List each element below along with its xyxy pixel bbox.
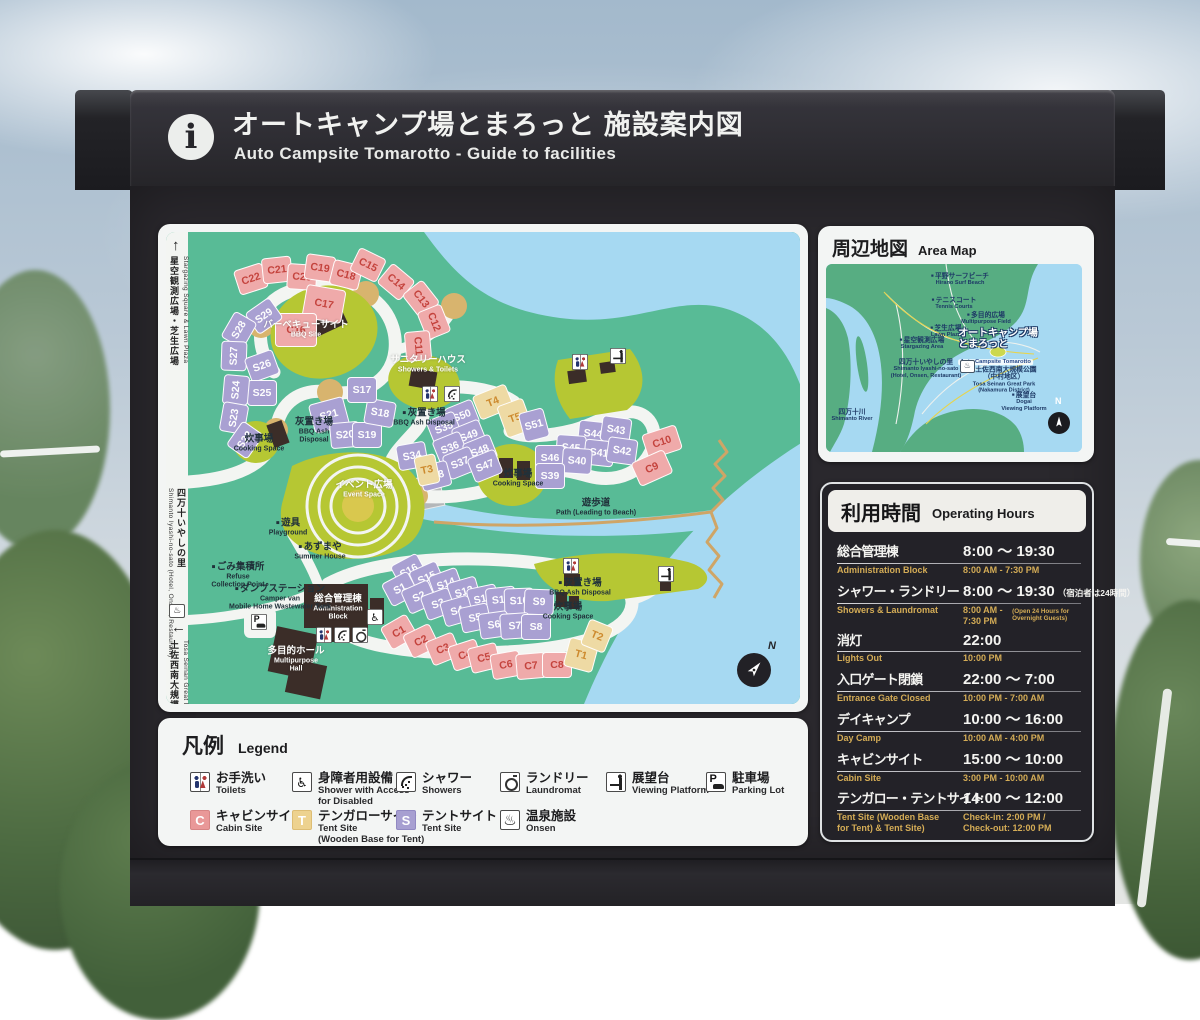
legend-label-jp: テントサイト [422,810,497,824]
legend-label-jp: お手洗い [216,772,266,786]
hours-time: 8:00 ～ 19:30 [963,580,1055,601]
hours-row-jp-line: 総合管理棟8:00 ～ 19:30 [837,540,1081,561]
area-label: 多目的広場Multipurpose Field [961,312,1011,326]
legend-label-en: Laundromat [526,786,589,797]
legend-item-text: 温泉施設Onsen [526,810,576,835]
hours-row-en-line: Showers & Laundromat8:00 AM - 7:30 PM(Op… [837,605,1081,627]
hours-label-jp: シャワー・ランドリー [837,581,963,600]
area-label-layer: 平野サーフビーチHirano Surf BeachテニスコートTennis Co… [826,264,1082,452]
hours-time-en: 8:00 AM - 7:30 PM [963,565,1039,576]
hours-row: 消灯22:00Lights Out10:00 PM [837,630,1081,664]
route-label-en: Tosa Seinan Great Park [182,640,189,704]
hours-row-jp-line: キャビンサイト15:00 ～ 10:00 [837,748,1081,769]
facility-map-panel: C22C21C20C19C18C15C14C13C12C11C17C16S29S… [158,224,808,712]
hours-divider [837,691,1081,692]
onsen-icon: ♨ [169,604,185,618]
area-map-panel: 周辺地図Area Map [818,226,1094,462]
route-label-en: Stargazing Square & Lawn Plaza [182,256,189,363]
legend-label-en: Cabin Site [216,824,304,835]
area-label-jp: 平野サーフビーチ [931,273,989,280]
legend-item-onsen: 温泉施設Onsen [500,810,576,835]
area-label-jp: 土佐西南大規模公園（中村地区） [965,366,1043,381]
map-label-en: Event Space [335,491,392,499]
hours-time: 10:00 ～ 16:00 [963,708,1063,729]
area-onsen-icon: ♨ [960,360,975,373]
legend-label-jp: 温泉施設 [526,810,576,824]
legend-label-en: Toilets [216,786,266,797]
legend-item-text: シャワーShowers [422,772,472,797]
map-label-jp: 炊事場 [543,603,594,614]
map-label-en: BBQ Ash Disposal [549,589,611,597]
legend-label-en: Onsen [526,824,576,835]
compass-icon [737,653,771,687]
hours-time-en: 10:00 AM - 4:00 PM [963,733,1044,744]
s-icon: S [396,810,416,830]
area-map-title: 周辺地図Area Map [832,234,977,261]
hours-label-jp: デイキャンプ [837,709,963,728]
area-label-jp: 四万十川 [831,409,872,416]
legend-item-toilets: お手洗いToilets [190,772,266,797]
route-stargazing-plaza: 星空観測広場・芝生広場 Stargazing Square & Lawn Pla… [168,256,275,366]
facility-map: C22C21C20C19C18C15C14C13C12C11C17C16S29S… [166,232,800,704]
map-label-jp: 灰置き場 [393,409,455,420]
map-label: サニタリーハウスShowers & Toilets [390,356,466,375]
map-label: 遊歩道Path (Leading to Beach) [556,499,636,518]
legend-label-jp: キャビンサイト [216,810,304,824]
hours-label-en: Tent Site (Wooden Base for Tent) & Tent … [837,812,963,834]
area-label: 四万十いやしの里Shimanto Iyashi-no-sato (Hotel, … [891,359,962,379]
hours-header: 利用時間 Operating Hours [828,490,1086,532]
hours-divider [837,603,1081,604]
map-label-jp: イベント広場 [335,481,392,492]
legend-item-text: キャビンサイトCabin Site [216,810,304,835]
legend-item-text: お手洗いToilets [216,772,266,797]
hours-note-en: (Open 24 Hours for Overnight Guests) [1012,608,1081,622]
map-label-en: Cooking Space [543,613,594,621]
hours-row: 入口ゲート閉鎖22:00 ～ 7:00Entrance Gate Closed1… [837,668,1081,704]
map-label: 炊事場Cooking Space [543,603,594,622]
hours-time: 22:00 ～ 7:00 [963,668,1055,689]
shower-icon [396,772,416,792]
hours-note: （宿泊者は24時間） [1058,587,1135,599]
viewpoint-icon [606,772,626,792]
hours-time: 8:00 ～ 19:30 [963,540,1055,561]
legend-item-c: CキャビンサイトCabin Site [190,810,304,835]
map-label-en: Cooking Space [493,480,544,488]
info-icon: i [168,114,214,160]
area-compass-icon [1048,412,1070,434]
hours-label-en: Entrance Gate Closed [837,693,963,704]
route-label-jp: 四万十いやしの里 [175,488,188,568]
hours-row-jp-line: デイキャンプ10:00 ～ 16:00 [837,708,1081,729]
map-label-jp: 灰置き場 [549,579,611,590]
area-label-en: Dogai Viewing Platform [1001,400,1046,412]
hours-time-en: 8:00 AM - 7:30 PM [963,605,1009,627]
hours-time-en: Check-in: 2:00 PM / Check-out: 12:00 PM [963,812,1052,834]
map-label: バーベキューサイトBBQ Site [263,321,348,340]
area-label-jp: テニスコート [932,297,977,304]
map-label-en: Path (Leading to Beach) [556,509,636,517]
onsen-icon [500,810,520,830]
legend-panel: 凡例Legend お手洗いToilets身障者用設備Shower with Ac… [158,718,808,846]
hours-label-jp: キャビンサイト [837,749,963,768]
c-icon: C [190,810,210,830]
area-label-en: Stargazing Area [900,345,945,351]
area-label-jp: 多目的広場 [961,312,1011,319]
legend-item-text: ランドリーLaundromat [526,772,589,797]
legend-label-jp: 展望台 [632,772,709,786]
legend-label-en: Viewing Platform [632,786,709,797]
legend-label-en: Tent Site [422,824,497,835]
hours-row-en-line: Entrance Gate Closed10:00 PM - 7:00 AM [837,693,1081,704]
legend-label-jp: ランドリー [526,772,589,786]
hours-row: シャワー・ランドリー8:00 ～ 19:30（宿泊者は24時間）Showers … [837,580,1081,627]
hours-row-en-line: Cabin Site3:00 PM - 10:00 AM [837,773,1081,784]
legend-item-text: テントサイトTent Site [422,810,497,835]
arrow-up-icon: ↑ [172,238,180,253]
hours-row-jp-line: シャワー・ランドリー8:00 ～ 19:30（宿泊者は24時間） [837,580,1081,601]
arrow-down-icon: ↓ [172,684,180,699]
area-label-en: Multipurpose Field [961,320,1011,326]
area-map-title-en: Area Map [918,243,977,258]
sign-post-left [75,90,133,190]
legend-item-shower: シャワーShowers [396,772,472,797]
map-label-en: Cooking Space [234,445,285,453]
accessible-icon [292,772,312,792]
hours-row: テンガロー・テントサイト14:00 ～ 12:00Tent Site (Wood… [837,787,1081,834]
hours-time-en: 3:00 PM - 10:00 AM [963,773,1044,784]
area-label-en: Tennis Courts [932,305,977,311]
sign-base [130,858,1115,906]
legend-item-parking: 駐車場Parking Lot [706,772,784,797]
area-label: 土佐西南大規模公園（中村地区）Tosa Seinan Great Park (N… [965,366,1043,393]
operating-hours-panel: 利用時間 Operating Hours 総合管理棟8:00 ～ 19:30Ad… [820,482,1094,842]
hours-row: キャビンサイト15:00 ～ 10:00Cabin Site3:00 PM - … [837,748,1081,784]
hours-row-jp-line: 消灯22:00 [837,630,1081,649]
legend-label-en: Parking Lot [732,786,784,797]
map-label-en: BBQ Site [263,331,348,339]
hours-row-en-line: Day Camp10:00 AM - 4:00 PM [837,733,1081,744]
area-label: 展望台Dogai Viewing Platform [1001,392,1046,412]
toilets-icon [190,772,210,792]
sign-header: i オートキャンプ場とまろっと 施設案内図 Auto Campsite Toma… [130,90,1115,186]
legend-item-s: SテントサイトTent Site [396,810,497,835]
map-label-jp: 炊事場 [493,470,544,481]
sign-title-en: Auto Campsite Tomarotto - Guide to facil… [234,144,616,164]
hours-label-jp: 入口ゲート閉鎖 [837,669,963,688]
area-label-en: Shimanto River [831,417,872,423]
hours-row-jp-line: 入口ゲート閉鎖22:00 ～ 7:00 [837,668,1081,689]
hours-title-en: Operating Hours [932,506,1035,521]
legend-item-viewpoint: 展望台Viewing Platform [606,772,709,797]
map-label-jp: 灰置き場 [295,417,333,428]
hours-label-jp: 総合管理棟 [837,541,963,560]
hours-label-en: Showers & Laundromat [837,605,963,616]
area-compass-north-label: N [1055,396,1062,406]
map-label-en: BBQ Ash Disposal [393,419,455,427]
hours-label-en: Administration Block [837,565,963,576]
map-label-jp: サニタリーハウス [390,356,466,367]
legend-item-laundry: ランドリーLaundromat [500,772,589,797]
legend-label-en: Showers [422,786,472,797]
map-label: イベント広場Event Space [335,481,392,500]
legend-item-text: 展望台Viewing Platform [632,772,709,797]
sign-title-jp: オートキャンプ場とまろっと 施設案内図 [232,103,744,142]
map-label-en: Showers & Toilets [390,366,466,374]
compass-north-label: N [768,640,776,652]
hours-divider [837,810,1081,811]
hours-label-jp: テンガロー・テントサイト [837,788,963,807]
area-label: 平野サーフビーチHirano Surf Beach [931,273,989,287]
hours-row-en-line: Tent Site (Wooden Base for Tent) & Tent … [837,812,1081,834]
sign-post-right [1107,90,1165,190]
area-label-jp: 展望台 [1001,392,1046,399]
map-label: 炊事場Cooking Space [234,435,285,454]
area-label-en: Shimanto Iyashi-no-sato (Hotel, Onsen, R… [891,367,962,379]
area-label: 四万十川Shimanto River [831,409,872,423]
route-label-jp: 星空観測広場・芝生広場 [168,256,181,366]
legend-label-jp: シャワー [422,772,472,786]
hours-row-en-line: Lights Out10:00 PM [837,653,1081,664]
map-label: 灰置き場BBQ Ash Disposal [549,579,611,598]
area-map-title-jp: 周辺地図 [832,239,908,260]
map-label-jp: バーベキューサイト [263,321,348,332]
hours-time-en: 10:00 PM [963,653,1002,664]
area-map: 平野サーフビーチHirano Surf BeachテニスコートTennis Co… [826,264,1082,452]
area-label: 星空観測広場Stargazing Area [900,337,945,351]
hours-time: 22:00 [963,632,1001,649]
hours-row-en-line: Administration Block8:00 AM - 7:30 PM [837,565,1081,576]
parking-icon [706,772,726,792]
hours-divider [837,651,1081,652]
area-label-jp: 四万十いやしの里 [891,359,962,366]
legend-item-text: 駐車場Parking Lot [732,772,784,797]
hours-row: 総合管理棟8:00 ～ 19:30Administration Block8:0… [837,540,1081,576]
map-label: 炊事場Cooking Space [493,470,544,489]
route-iyashi-no-sato: Shimanto Iyashi-no-sato (Hotel, Onsen, R… [167,488,307,658]
hours-row-jp-line: テンガロー・テントサイト14:00 ～ 12:00 [837,787,1081,808]
hours-time-en: 10:00 PM - 7:00 AM [963,693,1044,704]
hours-label-en: Cabin Site [837,773,963,784]
t-icon: T [292,810,312,830]
laundry-icon [500,772,520,792]
hours-time: 15:00 ～ 10:00 [963,748,1063,769]
campsite-sign: i オートキャンプ場とまろっと 施設案内図 Auto Campsite Toma… [75,88,1165,904]
hours-divider [837,731,1081,732]
hours-label-jp: 消灯 [837,630,963,649]
area-label-jp: 芝生広場 [930,325,961,332]
legend-label-jp: 駐車場 [732,772,784,786]
hours-time: 14:00 ～ 12:00 [963,787,1063,808]
legend-item-accessible: 身障者用設備Shower with Access for Disabled [292,772,410,808]
route-tosa-seinan-park: 土佐西南大規模公園 Tosa Seinan Great Park [168,640,314,704]
map-label: 灰置き場BBQ Ash Disposal [393,409,455,428]
area-label-en: Hirano Surf Beach [931,281,989,287]
hours-row: デイキャンプ10:00 ～ 16:00Day Camp10:00 AM - 4:… [837,708,1081,744]
map-label-en: BBQ Ash Disposal [295,428,333,444]
arrow-left-icon: ← [171,620,186,635]
map-label-jp: 炊事場 [234,435,285,446]
map-label: 灰置き場BBQ Ash Disposal [295,417,333,444]
map-label-jp: 遊歩道 [556,499,636,510]
hours-label-en: Day Camp [837,733,963,744]
sign-board: C22C21C20C19C18C15C14C13C12C11C17C16S29S… [130,186,1115,858]
hours-rows: 総合管理棟8:00 ～ 19:30Administration Block8:0… [837,540,1081,834]
hours-divider [837,771,1081,772]
area-campsite-jp: オートキャンプ場 とまろっと [958,328,1038,350]
hours-title-jp: 利用時間 [841,497,921,526]
area-label-jp: 星空観測広場 [900,337,945,344]
legend-items: お手洗いToilets身障者用設備Shower with Access for … [182,736,798,840]
hours-label-en: Lights Out [837,653,963,664]
hours-divider [837,563,1081,564]
area-label: テニスコートTennis Courts [932,297,977,311]
